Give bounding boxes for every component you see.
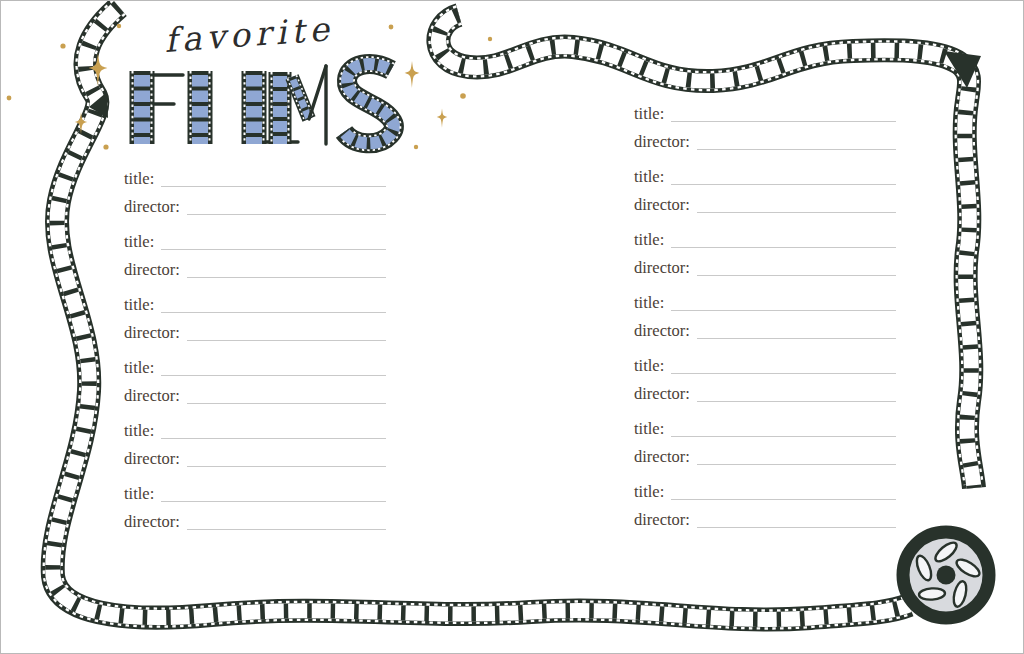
film-entry: title: director: bbox=[124, 285, 386, 341]
director-label: director: bbox=[124, 513, 180, 530]
title-input-line[interactable] bbox=[671, 224, 896, 248]
title-input-line[interactable] bbox=[161, 478, 386, 502]
director-label: director: bbox=[124, 261, 180, 278]
title-field: title: bbox=[634, 220, 896, 248]
director-field: director: bbox=[124, 376, 386, 404]
title-label: title: bbox=[124, 296, 154, 313]
film-entry: title: director: bbox=[124, 474, 386, 530]
journal-page: favorite FILMS title: director: title: d… bbox=[0, 0, 1024, 654]
film-entry: title: director: bbox=[124, 411, 386, 467]
title-field: title: bbox=[124, 222, 386, 250]
title-label: title: bbox=[634, 483, 664, 500]
director-label: director: bbox=[124, 450, 180, 467]
director-field: director: bbox=[634, 248, 896, 276]
title-input-line[interactable] bbox=[671, 413, 896, 437]
title-input-line[interactable] bbox=[671, 476, 896, 500]
title-field: title: bbox=[634, 157, 896, 185]
reel-slot bbox=[919, 588, 946, 601]
director-field: director: bbox=[124, 502, 386, 530]
director-label: director: bbox=[634, 448, 690, 465]
director-field: director: bbox=[124, 439, 386, 467]
films-list-right: title: director: title: director: title:… bbox=[634, 94, 896, 535]
director-input-line[interactable] bbox=[697, 504, 896, 528]
director-label: director: bbox=[634, 259, 690, 276]
director-input-line[interactable] bbox=[697, 441, 896, 465]
director-label: director: bbox=[634, 196, 690, 213]
title-field: title: bbox=[124, 474, 386, 502]
title-input-line[interactable] bbox=[161, 415, 386, 439]
title-input-line[interactable] bbox=[161, 226, 386, 250]
title-label: title: bbox=[124, 233, 154, 250]
title-input-line[interactable] bbox=[161, 289, 386, 313]
director-label: director: bbox=[124, 198, 180, 215]
title-input-line[interactable] bbox=[671, 98, 896, 122]
director-input-line[interactable] bbox=[697, 252, 896, 276]
title-label: title: bbox=[124, 422, 154, 439]
title-label: title: bbox=[634, 105, 664, 122]
director-input-line[interactable] bbox=[697, 126, 896, 150]
director-label: director: bbox=[634, 511, 690, 528]
director-field: director: bbox=[634, 122, 896, 150]
title-label: title: bbox=[124, 485, 154, 502]
title-field: title: bbox=[124, 159, 386, 187]
title-field: title: bbox=[634, 283, 896, 311]
director-label: director: bbox=[634, 133, 690, 150]
title-label: title: bbox=[124, 359, 154, 376]
title-field: title: bbox=[634, 472, 896, 500]
sparkle-dot-icon bbox=[389, 25, 394, 30]
director-field: director: bbox=[634, 185, 896, 213]
director-input-line[interactable] bbox=[697, 315, 896, 339]
film-entry: title: director: bbox=[634, 283, 896, 339]
director-label: director: bbox=[124, 387, 180, 404]
film-entry: title: director: bbox=[634, 346, 896, 402]
films-title: FILMS bbox=[129, 59, 399, 149]
title-label: title: bbox=[634, 168, 664, 185]
title-label: title: bbox=[634, 231, 664, 248]
director-label: director: bbox=[634, 322, 690, 339]
title-input-line[interactable] bbox=[671, 161, 896, 185]
director-field: director: bbox=[634, 311, 896, 339]
director-field: director: bbox=[124, 187, 386, 215]
film-entry: title: director: bbox=[634, 220, 896, 276]
title-label: title: bbox=[634, 357, 664, 374]
films-list-left: title: director: title: director: title:… bbox=[124, 159, 386, 537]
sparkle-dot-icon bbox=[460, 93, 466, 99]
director-input-line[interactable] bbox=[187, 443, 386, 467]
sparkle-dot-icon bbox=[7, 96, 12, 101]
film-entry: title: director: bbox=[634, 94, 896, 150]
film-entry: title: director: bbox=[124, 222, 386, 278]
reel-hub bbox=[937, 566, 956, 585]
director-field: director: bbox=[634, 500, 896, 528]
film-entry: title: director: bbox=[634, 409, 896, 465]
director-field: director: bbox=[634, 437, 896, 465]
title-input-line[interactable] bbox=[161, 352, 386, 376]
director-input-line[interactable] bbox=[187, 254, 386, 278]
title-input-line[interactable] bbox=[161, 163, 386, 187]
director-field: director: bbox=[124, 313, 386, 341]
sparkle-dot-icon bbox=[117, 24, 121, 28]
director-input-line[interactable] bbox=[697, 378, 896, 402]
film-entry: title: director: bbox=[634, 157, 896, 213]
director-field: director: bbox=[634, 374, 896, 402]
title-field: title: bbox=[634, 94, 896, 122]
director-input-line[interactable] bbox=[187, 506, 386, 530]
title-label: title: bbox=[634, 294, 664, 311]
director-input-line[interactable] bbox=[187, 380, 386, 404]
director-input-line[interactable] bbox=[697, 189, 896, 213]
director-input-line[interactable] bbox=[187, 191, 386, 215]
director-label: director: bbox=[634, 385, 690, 402]
sparkle-dot-icon bbox=[103, 144, 108, 149]
director-label: director: bbox=[124, 324, 180, 341]
sparkle-dot-icon bbox=[414, 145, 418, 149]
sparkle-dot-icon bbox=[488, 37, 492, 41]
film-reel bbox=[903, 532, 989, 618]
film-entry: title: director: bbox=[124, 348, 386, 404]
title-input-line[interactable] bbox=[671, 350, 896, 374]
title-field: title: bbox=[634, 409, 896, 437]
title-label: title: bbox=[124, 170, 154, 187]
title-label: title: bbox=[634, 420, 664, 437]
director-field: director: bbox=[124, 250, 386, 278]
title-input-line[interactable] bbox=[671, 287, 896, 311]
film-entry: title: director: bbox=[634, 472, 896, 528]
title-field: title: bbox=[124, 411, 386, 439]
sparkle-star-icon bbox=[437, 109, 448, 128]
film-entry: title: director: bbox=[124, 159, 386, 215]
sparkle-dot-icon bbox=[60, 43, 65, 48]
sparkle-star-icon bbox=[405, 61, 420, 88]
title-field: title: bbox=[124, 348, 386, 376]
title-field: title: bbox=[124, 285, 386, 313]
director-input-line[interactable] bbox=[187, 317, 386, 341]
title-field: title: bbox=[634, 346, 896, 374]
